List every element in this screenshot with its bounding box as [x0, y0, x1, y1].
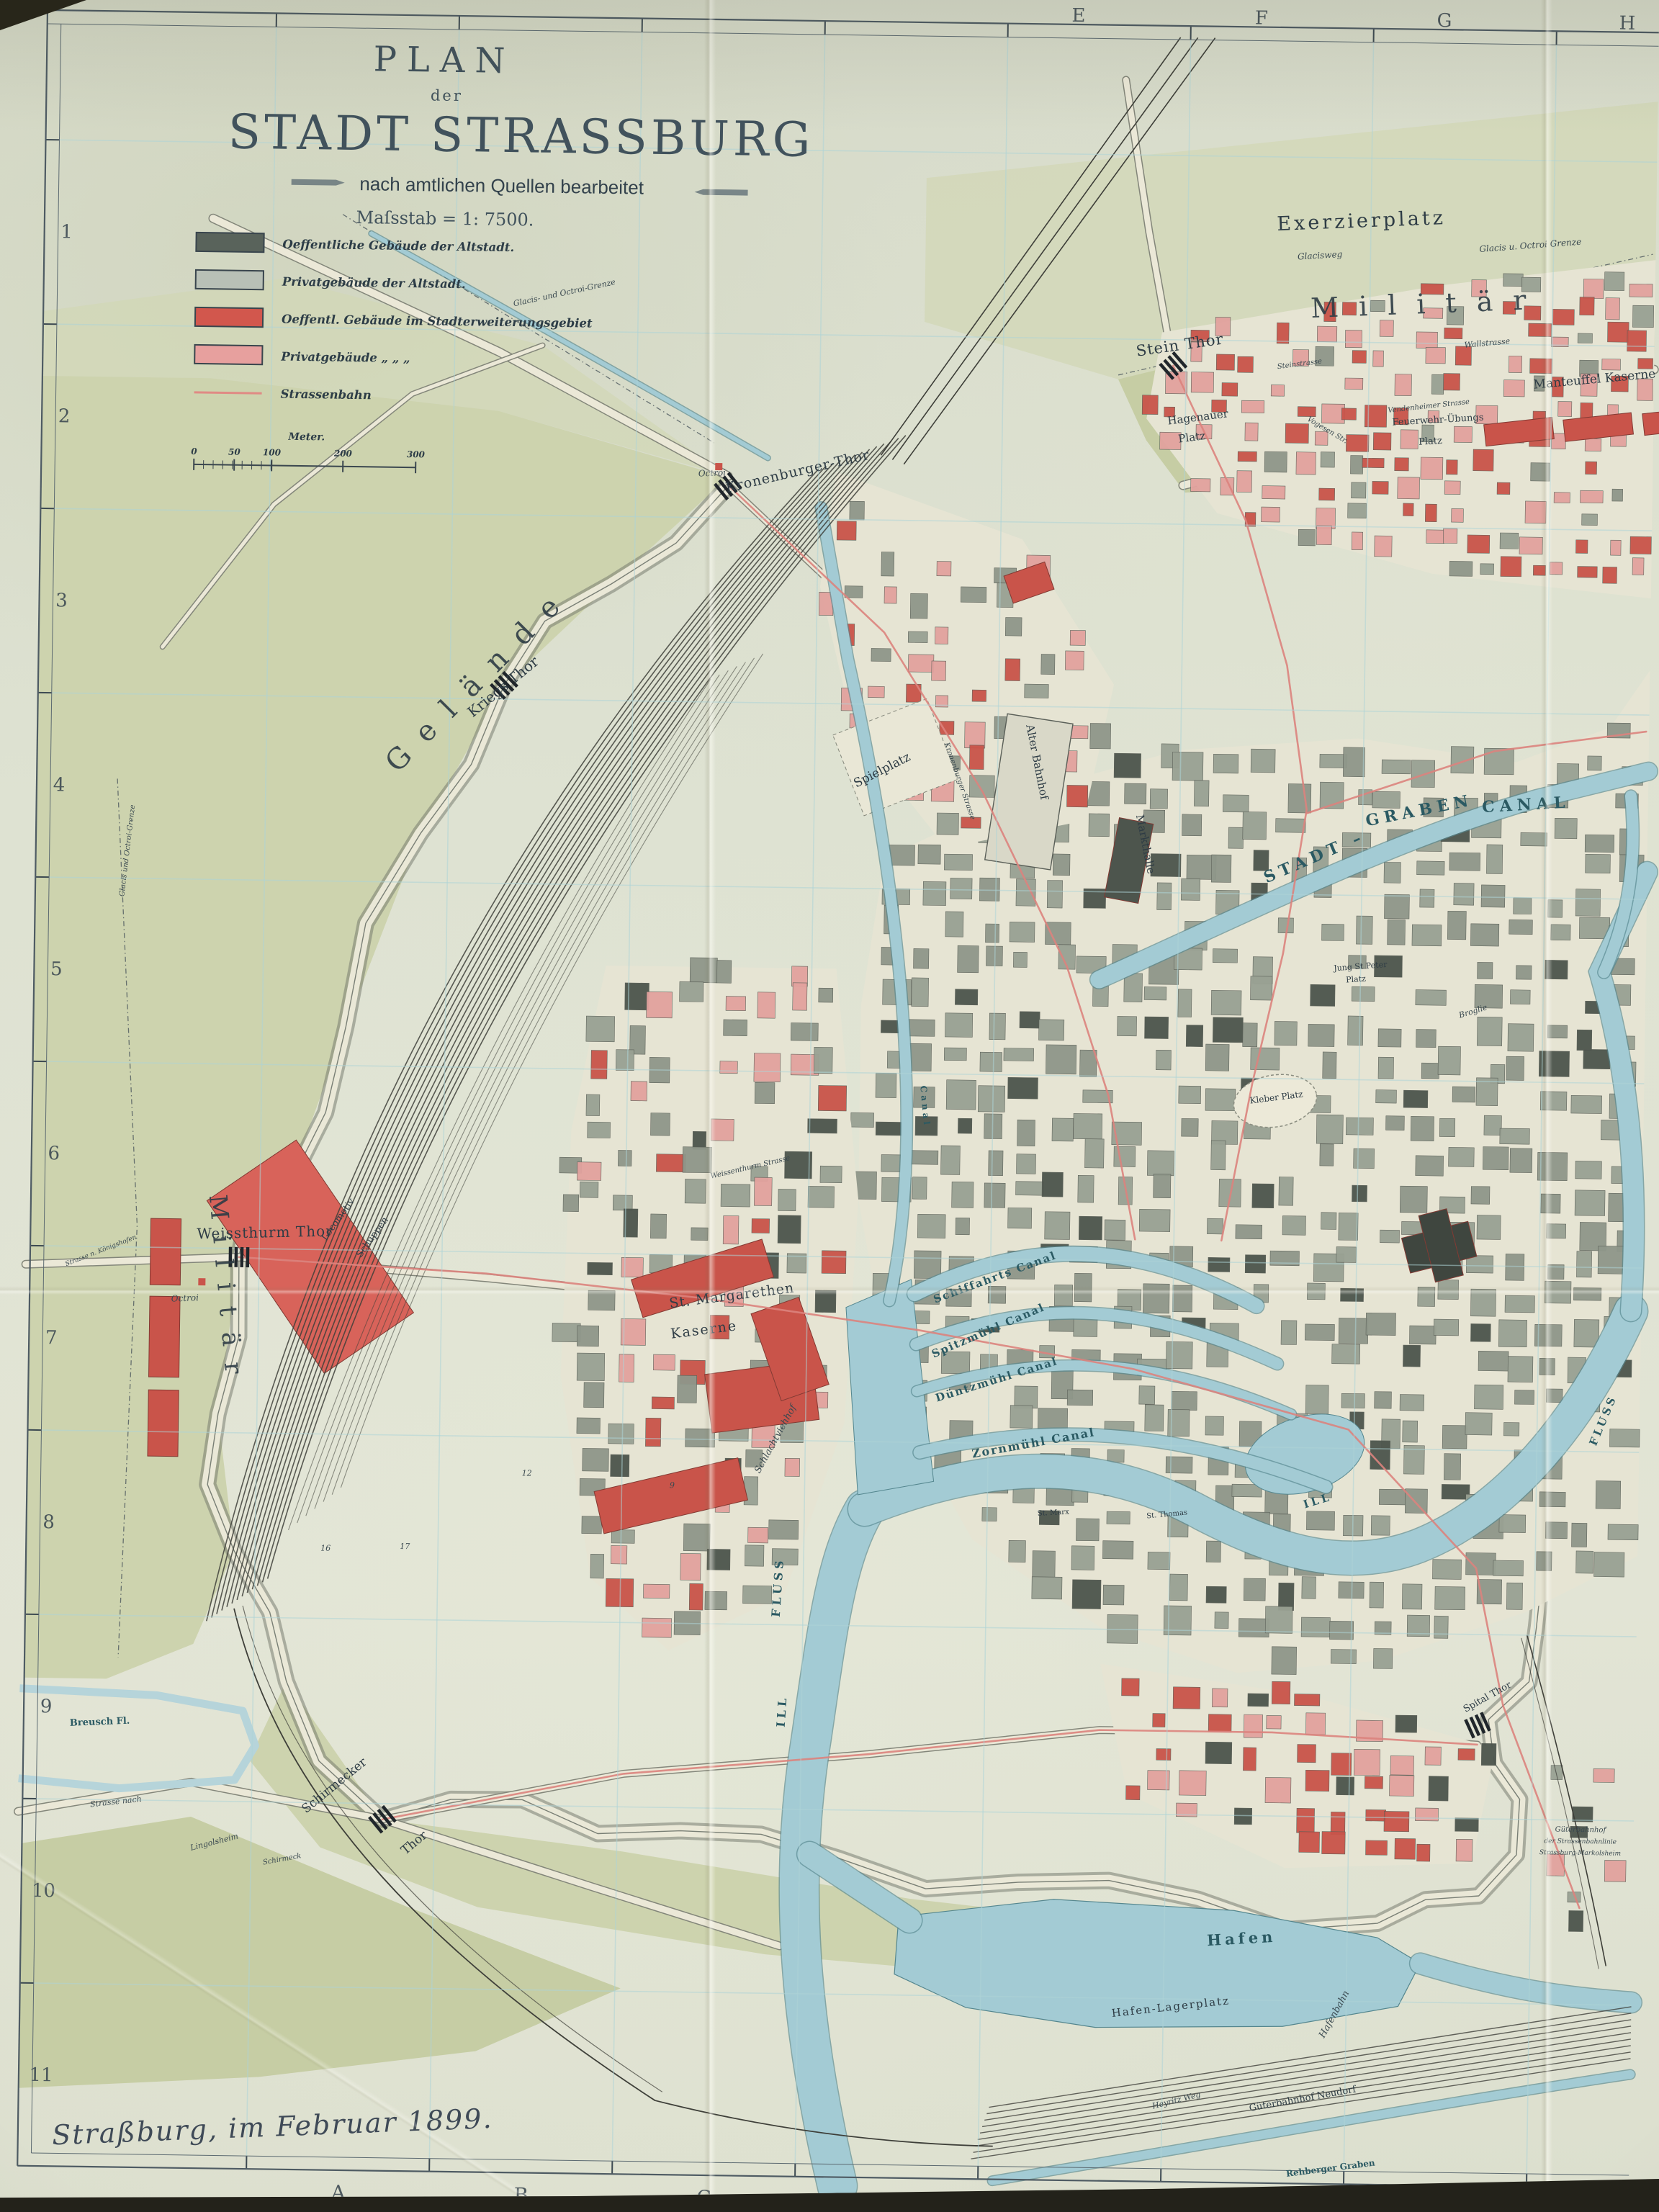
building-block [1612, 489, 1623, 501]
building-block [1516, 966, 1532, 979]
building-block [778, 1215, 801, 1244]
building-block [785, 1458, 800, 1476]
building-block [950, 878, 972, 899]
building-block [1310, 984, 1336, 1006]
building-block [1486, 845, 1502, 873]
grid-col-label-bottom: D [879, 2189, 895, 2211]
map-label: Breusch Fl. [70, 1716, 130, 1729]
building-block [1477, 1017, 1502, 1046]
building-block [1089, 814, 1110, 837]
building-block [1395, 1715, 1417, 1732]
building-block [724, 1020, 747, 1036]
building-block [552, 1323, 580, 1342]
building-block [1412, 925, 1442, 946]
building-block [1411, 760, 1435, 788]
building-block [1331, 1650, 1356, 1664]
building-block [1341, 1393, 1364, 1408]
building-block [1107, 1511, 1130, 1524]
building-block [1341, 408, 1356, 420]
building-block [1432, 1560, 1461, 1580]
building-block [1213, 949, 1237, 963]
building-block [1510, 1148, 1532, 1173]
building-block [1067, 1390, 1093, 1406]
building-block [680, 1553, 701, 1580]
grid-col-label-bottom: G [1428, 2197, 1444, 2212]
building-block [1054, 1285, 1072, 1306]
building-block [912, 1177, 927, 1200]
building-block [1508, 1357, 1533, 1382]
building-block [1470, 1289, 1496, 1316]
building-block [653, 1354, 675, 1370]
building-block [1604, 272, 1624, 291]
building-block [1506, 1583, 1522, 1609]
building-block [1514, 898, 1532, 914]
building-block [1321, 1213, 1336, 1230]
building-block [932, 661, 946, 680]
building-block [979, 878, 999, 901]
building-block [1571, 1095, 1602, 1113]
building-block [945, 912, 963, 937]
building-block [1016, 1182, 1044, 1195]
building-block [678, 1375, 697, 1403]
building-block [1378, 1057, 1394, 1079]
building-block [1020, 1012, 1040, 1028]
building-block [1271, 385, 1285, 396]
grid-row-label: 4 [53, 774, 65, 796]
building-block [1443, 529, 1457, 544]
map-label: Octroi [171, 1292, 199, 1303]
building-block [1345, 330, 1362, 347]
grid-col-label-bottom: B [514, 2184, 529, 2206]
building-block [1251, 749, 1275, 773]
building-block [1551, 925, 1570, 940]
map-photo: 1234567891011EFGHABCDEFGH PLAN der STADT… [0, 0, 1659, 2212]
map-label: Güterbahnhof [1555, 1825, 1608, 1834]
building-block [591, 1051, 608, 1079]
building-block [1345, 378, 1363, 390]
building-block [1449, 853, 1480, 871]
building-block [808, 1186, 834, 1208]
legend-label: Oeffentliche Gebäude der Altstadt. [282, 238, 514, 254]
building-block [1181, 878, 1200, 900]
building-block [1403, 503, 1414, 516]
building-block [1008, 1208, 1032, 1228]
building-block [1341, 1288, 1364, 1301]
building-block [1380, 320, 1393, 337]
building-block [1322, 1832, 1346, 1854]
building-block [1352, 986, 1375, 1001]
building-block [1426, 530, 1444, 544]
building-block [881, 552, 894, 577]
building-block [1264, 451, 1287, 472]
building-block [1352, 532, 1362, 550]
building-block [1166, 1341, 1192, 1369]
building-block [1302, 1577, 1316, 1599]
building-block [1384, 1811, 1409, 1831]
building-block [1279, 1177, 1293, 1205]
building-block [1525, 501, 1546, 523]
building-block [754, 1053, 781, 1082]
building-block [1215, 1612, 1228, 1629]
building-block [1500, 533, 1519, 549]
building-block [1547, 1025, 1567, 1038]
building-block [808, 1119, 837, 1133]
building-block [820, 1166, 842, 1183]
building-block [1400, 1395, 1424, 1411]
building-block [1320, 1144, 1334, 1166]
building-block [1354, 1749, 1380, 1775]
building-block [1442, 1484, 1470, 1499]
building-block [652, 1397, 674, 1409]
building-block [716, 961, 731, 984]
building-block [1346, 1118, 1373, 1135]
map-label: ILL [774, 1694, 790, 1727]
building-block [1074, 1113, 1102, 1139]
building-block [1403, 1421, 1418, 1442]
building-block [1452, 1087, 1475, 1102]
building-block [1078, 1175, 1094, 1202]
map-title-word: PLAN [373, 39, 516, 81]
building-block [1401, 430, 1418, 449]
legend-swatch-line [194, 392, 262, 393]
building-block [1594, 1552, 1624, 1578]
building-block [884, 587, 896, 603]
building-block [1379, 1489, 1406, 1505]
building-block [1072, 1580, 1101, 1609]
building-block [752, 1218, 770, 1233]
building-block [1041, 655, 1055, 675]
frame-line-top-inner [48, 24, 1659, 46]
title-block: PLAN der STADT STRASSBURG nach amtlichen… [227, 37, 815, 234]
building-block [1576, 1251, 1591, 1277]
building-block [1503, 1423, 1519, 1437]
building-block [1471, 1187, 1490, 1205]
grid-col-label-bottom: H [1610, 2200, 1627, 2212]
building-block [631, 1082, 647, 1101]
building-block [1608, 1524, 1638, 1540]
building-block [1509, 920, 1533, 934]
building-block [1447, 911, 1466, 940]
building-block [1455, 1818, 1479, 1832]
building-block [876, 1122, 902, 1136]
scalebar-tick-label: 50 [228, 447, 241, 457]
building-block [1550, 562, 1563, 575]
building-block [1339, 1213, 1358, 1240]
building-block [1478, 1351, 1509, 1371]
building-block [1499, 1515, 1526, 1533]
building-block [1373, 433, 1391, 450]
building-block [683, 1524, 710, 1551]
building-block [1454, 884, 1474, 906]
building-block [577, 1353, 605, 1381]
legend-swatch [195, 307, 263, 327]
building-block [1090, 724, 1111, 749]
building-block [1251, 1048, 1280, 1070]
building-block [1191, 479, 1210, 492]
building-block [1509, 356, 1521, 372]
building-block [1510, 990, 1530, 1004]
building-block [1540, 1092, 1567, 1110]
building-block [1519, 537, 1542, 554]
building-block [1208, 1257, 1230, 1272]
building-block [1065, 651, 1084, 670]
building-block [1004, 1048, 1034, 1061]
building-block [1384, 894, 1409, 919]
building-block [586, 1016, 615, 1042]
building-block [1191, 372, 1213, 393]
building-block [1425, 1747, 1441, 1765]
building-block [1503, 380, 1524, 397]
building-block [1586, 854, 1611, 873]
building-block [1405, 1489, 1427, 1514]
building-block [1251, 976, 1273, 1000]
building-block [1157, 883, 1172, 910]
building-block [1604, 1860, 1626, 1881]
building-block [1395, 1838, 1416, 1859]
building-block [1145, 1405, 1164, 1431]
building-block [1548, 900, 1563, 918]
building-block [1501, 557, 1521, 577]
grid-col-label-top: H [1619, 12, 1635, 34]
building-block [1211, 1141, 1226, 1170]
building-block [1470, 1323, 1491, 1341]
building-block [650, 1113, 670, 1136]
map-label: Glacis- und Octroi-Grenze [513, 277, 617, 308]
landmark-building [149, 1296, 181, 1377]
building-block [1481, 885, 1505, 907]
building-block [1629, 284, 1653, 297]
building-block [791, 1023, 818, 1041]
building-block [1434, 1616, 1449, 1638]
building-block [1576, 1551, 1593, 1573]
building-block [1585, 835, 1614, 852]
building-block [1449, 1147, 1475, 1166]
building-block [914, 948, 929, 968]
building-block [1388, 920, 1406, 945]
building-block [1586, 462, 1597, 475]
building-block [1400, 1186, 1427, 1213]
map-label: 9 [670, 1480, 675, 1490]
building-block [1153, 1714, 1165, 1727]
scalebar-unit-label: Meter. [287, 431, 325, 444]
building-block [1205, 1416, 1223, 1435]
building-block [1182, 1118, 1199, 1136]
building-block [1438, 1280, 1459, 1299]
building-block [1493, 1560, 1524, 1576]
map-label: der Strassenbahnlinie [1544, 1838, 1617, 1845]
building-block [1484, 1115, 1501, 1135]
building-block [1045, 1212, 1070, 1240]
building-block [851, 1112, 874, 1127]
building-block [1107, 1449, 1124, 1462]
building-block [1339, 1582, 1364, 1599]
building-block [1285, 423, 1308, 443]
grid-row-label: 2 [58, 405, 71, 427]
building-block [1481, 1743, 1496, 1766]
building-block [1473, 449, 1494, 471]
building-block [965, 722, 986, 748]
building-block [1305, 1770, 1329, 1791]
building-block [1585, 439, 1601, 451]
building-block [1323, 1052, 1336, 1079]
building-block [586, 1094, 600, 1116]
grid-row-label: 6 [48, 1143, 60, 1164]
building-block [1370, 1582, 1384, 1608]
building-block [1350, 456, 1362, 475]
building-block [1329, 1621, 1353, 1640]
building-block [1578, 333, 1592, 343]
scalebar-tick-label: 0 [191, 446, 197, 457]
building-block [1071, 1546, 1094, 1570]
building-block [723, 1215, 739, 1244]
building-block [1103, 1585, 1124, 1605]
building-block [941, 1146, 961, 1174]
building-block [1539, 1051, 1569, 1077]
building-block [1403, 1090, 1428, 1107]
building-block [1205, 1044, 1229, 1071]
building-block [1465, 1413, 1492, 1435]
building-block [910, 593, 927, 619]
building-block [683, 1147, 711, 1173]
building-block [1627, 331, 1647, 352]
building-block [1547, 1224, 1566, 1238]
scalebar-tick-label: 200 [333, 449, 353, 459]
map-label: 17 [400, 1542, 410, 1551]
map-scale-text: Maſsstab = 1: 7500. [356, 207, 534, 230]
title-ornament-right [695, 189, 748, 196]
building-block [1322, 924, 1344, 940]
building-block [618, 1150, 631, 1166]
building-block [1067, 785, 1088, 807]
building-block [1114, 753, 1141, 778]
building-block [1573, 1807, 1593, 1822]
building-block [1331, 1753, 1352, 1776]
building-block [1632, 305, 1653, 327]
building-block [1352, 482, 1367, 498]
building-block [1267, 1715, 1282, 1729]
building-block [958, 945, 979, 973]
map-label: Strassburg-Markolsheim [1539, 1849, 1621, 1858]
grid-row-label: 5 [50, 958, 63, 980]
building-block [1343, 747, 1364, 777]
building-block [1356, 916, 1372, 944]
building-block [1308, 1024, 1335, 1046]
building-block [1409, 1326, 1436, 1344]
building-block [814, 1047, 832, 1074]
building-block [1301, 1617, 1330, 1637]
map-title-city: STADT STRASSBURG [228, 104, 814, 168]
building-block [1213, 1017, 1243, 1043]
building-block [1498, 1320, 1527, 1347]
building-block [1206, 1586, 1226, 1603]
building-block [1307, 1283, 1325, 1300]
building-block [1537, 1552, 1552, 1571]
building-block [1331, 1812, 1345, 1835]
building-block [1575, 889, 1600, 917]
building-block [1205, 1089, 1236, 1111]
building-block [1378, 1029, 1401, 1047]
building-block [1245, 423, 1258, 441]
building-block [711, 1119, 734, 1141]
legend-swatch [194, 345, 262, 364]
building-block [1010, 1406, 1033, 1429]
grid-row-label: 7 [45, 1327, 58, 1349]
building-block [1447, 460, 1458, 475]
building-block [1105, 1220, 1125, 1240]
building-block [989, 1013, 1006, 1040]
building-block [1053, 854, 1070, 876]
building-block [1206, 1541, 1220, 1562]
building-block [845, 586, 863, 598]
building-block [1386, 1116, 1405, 1130]
building-block [1213, 754, 1238, 773]
building-block [1366, 1313, 1396, 1335]
grid-col-label-bottom: C [696, 2187, 711, 2209]
building-block [1013, 952, 1027, 967]
building-block [1416, 1030, 1437, 1048]
building-block [1265, 1606, 1292, 1634]
building-block [1294, 1694, 1319, 1707]
frame-line-top-outer [48, 10, 1659, 32]
building-block [1296, 452, 1316, 475]
building-block [1596, 1481, 1621, 1509]
building-block [1366, 1840, 1388, 1855]
building-block [1574, 1319, 1599, 1347]
building-block [1248, 1694, 1269, 1707]
building-block [1282, 1216, 1305, 1236]
building-block [1573, 1287, 1601, 1300]
building-block [1305, 1324, 1334, 1341]
building-block [1238, 1619, 1269, 1637]
building-block [643, 1584, 670, 1599]
building-block [1070, 630, 1085, 645]
building-block [1588, 756, 1602, 770]
building-block [1005, 618, 1022, 637]
building-block [685, 1429, 715, 1447]
building-block [647, 992, 673, 1018]
building-block [1298, 1744, 1316, 1762]
building-block [1139, 1209, 1170, 1231]
building-block [1244, 1578, 1265, 1601]
building-block [1223, 795, 1249, 812]
building-block [1435, 1586, 1465, 1609]
building-block [619, 1354, 634, 1382]
building-block [978, 1086, 1004, 1112]
map-label: Octroi [698, 467, 727, 478]
building-block [868, 686, 884, 698]
grid-row-label: 3 [55, 590, 68, 611]
scalebar-tick-label: 100 [263, 447, 282, 457]
building-block [1205, 1742, 1232, 1764]
building-block [1398, 477, 1420, 499]
building-block [1546, 1389, 1563, 1403]
building-block [584, 1382, 604, 1408]
paper-sheet: 1234567891011EFGHABCDEFGH PLAN der STADT… [0, 0, 1659, 2212]
building-block [1371, 1516, 1390, 1535]
cartographer-signature: Straßburg, im Februar 1899. [51, 2103, 493, 2151]
building-block [613, 1195, 632, 1210]
building-block [1172, 752, 1203, 781]
building-block [1395, 458, 1409, 471]
grid-row-label: 8 [42, 1511, 55, 1533]
building-block [1143, 1284, 1169, 1313]
building-block [1537, 1152, 1568, 1180]
building-block [1467, 535, 1490, 553]
gate-bar [240, 1247, 243, 1267]
grid-col-label-top: E [1071, 5, 1085, 27]
building-block [1182, 814, 1202, 836]
map-tilt-wrapper: 1234567891011EFGHABCDEFGH PLAN der STADT… [0, 0, 1659, 2212]
